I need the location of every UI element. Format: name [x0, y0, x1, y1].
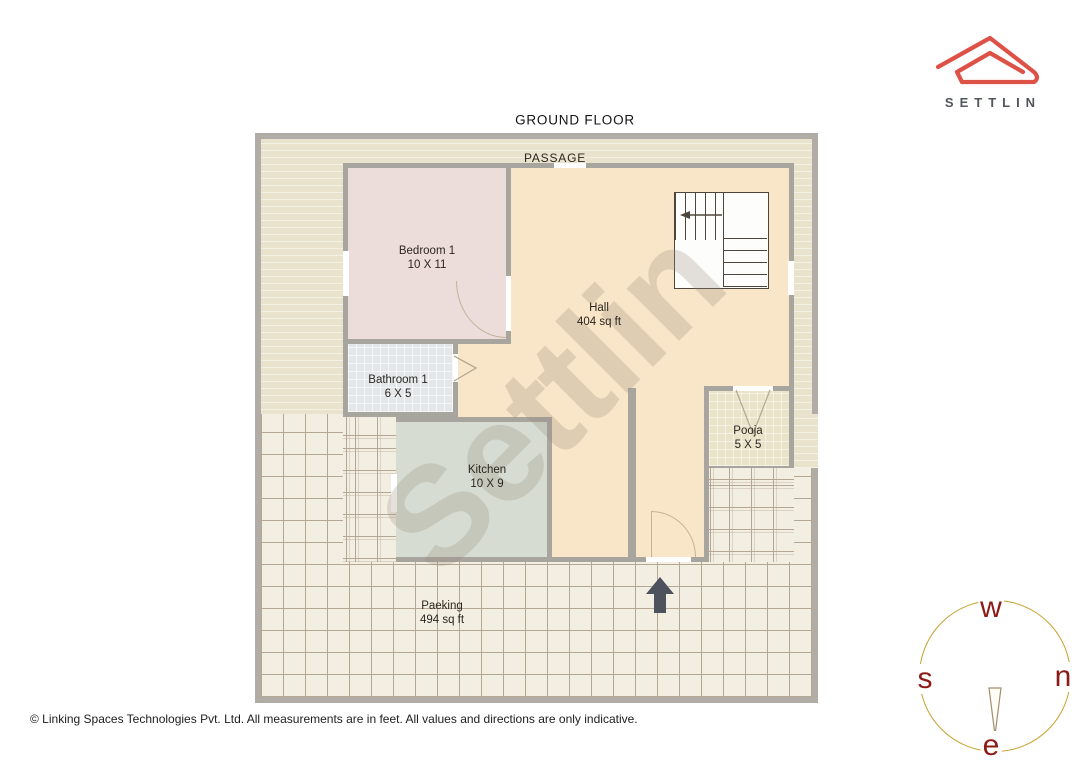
floor-plan: Settlin PASSAGE Bedroom 1 10 X 11 Bathro… — [255, 133, 818, 703]
logo-brand-text: SETTLIN — [930, 95, 1050, 110]
label-hall: Hall 404 sq ft — [577, 301, 621, 329]
stair-landing — [723, 193, 767, 238]
bedroom-window — [343, 251, 349, 296]
label-pooja: Pooja 5 X 5 — [733, 424, 762, 452]
entrance-arrow-icon — [646, 577, 676, 615]
parking-patch-right — [709, 468, 794, 562]
settlin-logo: SETTLIN — [930, 30, 1050, 110]
page-title: GROUND FLOOR — [515, 113, 635, 128]
compass-south: s — [916, 664, 935, 694]
compass: w n s e — [919, 600, 1071, 752]
corridor-right-wall — [704, 466, 709, 562]
label-parking: Paeking 494 sq ft — [420, 599, 464, 627]
stair-run-vertical — [723, 238, 767, 287]
label-passage: PASSAGE — [524, 151, 586, 165]
compass-west: w — [978, 593, 1004, 623]
floor-plan-page: GROUND FLOOR SETTLIN — [0, 0, 1080, 764]
footer-disclaimer: © Linking Spaces Technologies Pvt. Ltd. … — [30, 712, 638, 726]
settlin-roof-icon — [935, 30, 1045, 88]
compass-north: n — [1053, 662, 1074, 692]
label-kitchen: Kitchen 10 X 9 — [468, 463, 506, 491]
entrance-door-leaf — [651, 511, 652, 557]
stair-direction-arrow-icon — [678, 210, 724, 220]
label-bedroom1: Bedroom 1 10 X 11 — [399, 244, 455, 272]
hall-window — [788, 261, 794, 295]
label-bathroom1: Bathroom 1 6 X 5 — [368, 373, 427, 401]
bedroom-door-gap — [506, 276, 511, 331]
compass-east: e — [981, 731, 1002, 761]
entrance-door-gap — [646, 557, 691, 562]
